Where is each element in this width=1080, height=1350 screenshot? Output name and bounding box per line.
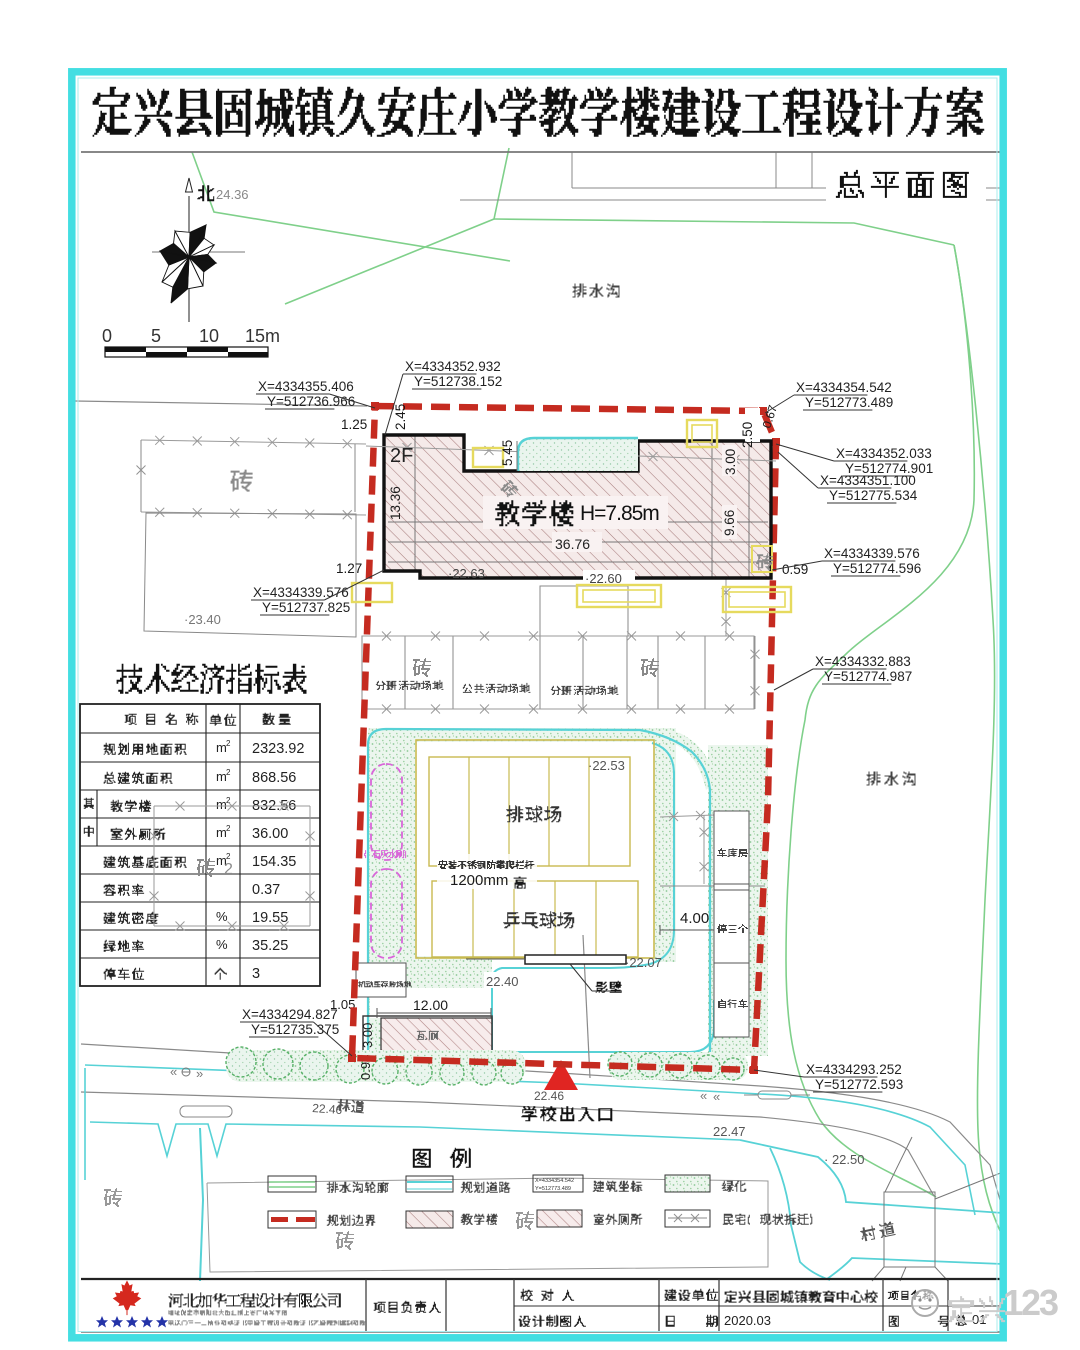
- svg-text:«: «: [170, 1064, 177, 1079]
- svg-text:2: 2: [226, 824, 231, 833]
- svg-text:»: »: [196, 1066, 203, 1081]
- svg-text:Y=512773.489: Y=512773.489: [535, 1186, 571, 1192]
- svg-text:X=4334339.576: X=4334339.576: [824, 546, 920, 561]
- svg-text:1.27: 1.27: [336, 561, 362, 576]
- svg-text:Y=512774.596: Y=512774.596: [833, 561, 921, 576]
- svg-text:868.56: 868.56: [252, 770, 296, 786]
- svg-text:2: 2: [226, 739, 231, 748]
- svg-text:X=4334293.252: X=4334293.252: [806, 1062, 902, 1077]
- svg-text:X=4334354.542: X=4334354.542: [535, 1178, 574, 1184]
- svg-text:22.40: 22.40: [486, 974, 519, 989]
- svg-text:«: «: [700, 1088, 707, 1103]
- svg-text:5.45: 5.45: [500, 440, 515, 466]
- svg-text:1.25: 1.25: [341, 417, 367, 432]
- svg-text:35.25: 35.25: [252, 938, 288, 954]
- svg-text:12.00: 12.00: [413, 997, 448, 1013]
- svg-text:Y=512736.966: Y=512736.966: [267, 394, 355, 409]
- svg-text:22.47: 22.47: [713, 1124, 746, 1139]
- svg-text:·22.63: ·22.63: [448, 566, 485, 581]
- svg-text:2F: 2F: [390, 445, 413, 467]
- svg-text:H=7.85m: H=7.85m: [580, 502, 659, 525]
- svg-text:10: 10: [199, 326, 219, 346]
- svg-text:X=4334352.033: X=4334352.033: [836, 446, 932, 461]
- svg-text:X=4334355.406: X=4334355.406: [258, 379, 354, 394]
- svg-text:2: 2: [224, 861, 233, 878]
- svg-text:X=4334354.542: X=4334354.542: [796, 380, 892, 395]
- svg-text:3: 3: [252, 966, 260, 982]
- svg-text:X=4334352.932: X=4334352.932: [405, 359, 501, 374]
- svg-text:·23.40: ·23.40: [184, 612, 221, 627]
- svg-text:X=4334332.883: X=4334332.883: [815, 654, 911, 669]
- svg-text:2.50: 2.50: [740, 422, 755, 448]
- svg-text:·22.07: ·22.07: [625, 955, 662, 970]
- svg-text:123: 123: [1003, 1282, 1058, 1323]
- svg-text:3.00: 3.00: [723, 449, 738, 475]
- svg-text:13.36: 13.36: [388, 486, 403, 520]
- svg-text:9.66: 9.66: [722, 510, 737, 536]
- svg-text:·22.60: ·22.60: [585, 571, 622, 586]
- svg-text:%: %: [216, 909, 228, 924]
- svg-text:3.00: 3.00: [360, 1023, 375, 1048]
- svg-text:2323.92: 2323.92: [252, 741, 304, 757]
- svg-text:2.45: 2.45: [393, 404, 408, 430]
- svg-text:·22.53: ·22.53: [588, 758, 625, 773]
- svg-text:· 22.50: · 22.50: [824, 1152, 864, 1167]
- svg-text:Y=512774.987: Y=512774.987: [824, 669, 912, 684]
- svg-text:15m: 15m: [245, 326, 280, 346]
- svg-text:Y=512738.152: Y=512738.152: [414, 374, 502, 389]
- svg-text:2: 2: [226, 852, 231, 861]
- svg-text:0.37: 0.37: [252, 882, 280, 898]
- svg-text:22.46: 22.46: [312, 1101, 343, 1117]
- svg-text:5: 5: [151, 326, 161, 346]
- svg-text:Y=512737.825: Y=512737.825: [262, 600, 350, 615]
- svg-text:«: «: [713, 1089, 720, 1104]
- svg-text:1200mm: 1200mm: [450, 872, 508, 889]
- svg-text:24.36: 24.36: [216, 187, 249, 202]
- svg-text:22.46: 22.46: [534, 1089, 564, 1103]
- svg-text:154.35: 154.35: [252, 854, 296, 870]
- svg-text:2: 2: [226, 768, 231, 777]
- svg-text:2020.03: 2020.03: [724, 1313, 771, 1328]
- svg-text:0: 0: [102, 326, 112, 346]
- svg-text:Y=512775.534: Y=512775.534: [829, 488, 918, 503]
- svg-text:Y=512735.375: Y=512735.375: [251, 1022, 339, 1037]
- svg-text:X=4334339.576: X=4334339.576: [253, 585, 349, 600]
- svg-text:4.00: 4.00: [680, 910, 709, 927]
- svg-text:X=4334294.827: X=4334294.827: [242, 1007, 338, 1022]
- svg-text:Y=512773.489: Y=512773.489: [805, 395, 893, 410]
- svg-text:36.76: 36.76: [555, 536, 590, 552]
- svg-text:36.00: 36.00: [252, 826, 288, 842]
- svg-text:%: %: [216, 937, 228, 952]
- svg-text:19.55: 19.55: [252, 910, 288, 926]
- svg-text:X=4334351.100: X=4334351.100: [820, 473, 916, 488]
- svg-text:Y=512772.593: Y=512772.593: [815, 1077, 903, 1092]
